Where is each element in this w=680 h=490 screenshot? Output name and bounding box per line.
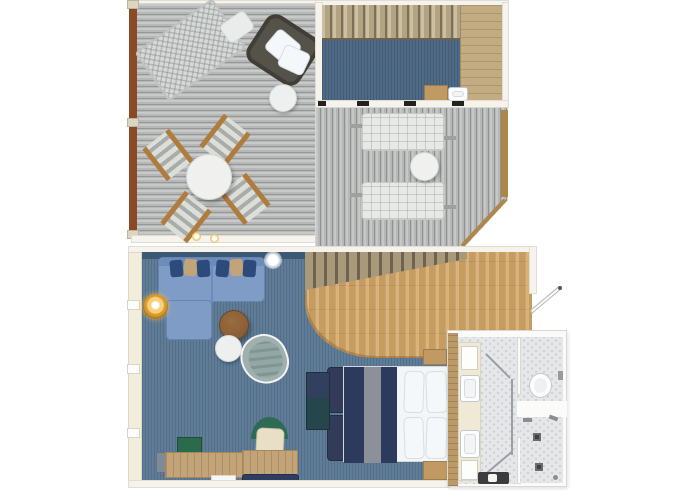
amenity-shelf [461,460,478,480]
upper-deck-bottom-wall [131,235,316,243]
bed-pillow [403,417,424,460]
sofa-pillow-tan [229,259,243,277]
sofa-pillow-tan [183,259,197,277]
entry-wall [529,246,537,294]
vanity-counter [458,342,481,481]
sofa-pillow-navy [196,260,210,278]
ceiling-light [264,251,282,269]
sofa-pillow-navy [215,259,229,277]
loft-right-wall [502,2,509,106]
window-mullion [127,428,140,438]
railing-post [127,0,139,9]
lower-bottom-wall [128,480,450,488]
sun-lounger [361,182,445,220]
shower-head [523,418,532,422]
dark-bench [478,472,509,484]
toilet-paper-holder [558,371,563,380]
window-segment [404,101,416,106]
bath-inner-wall [517,337,521,395]
sofa-pillow-navy [169,259,183,277]
sun-lounger [361,113,445,151]
nightstand [423,461,448,480]
bar-cabinet [424,85,448,101]
toilet [529,373,552,398]
amenity-shelf [461,346,478,370]
shower-drain [535,463,543,471]
shower-room-floor [520,417,563,483]
bed-pillow [425,371,447,414]
deck-light [210,234,219,243]
shower-drain [533,433,541,441]
deck-table [410,152,439,181]
storage-cabinet [306,372,330,430]
toilet-seat [534,378,547,393]
bathroom [447,330,567,487]
bath-wall-notch [517,401,567,417]
nightstand [423,349,447,365]
staircase-upper [322,5,461,40]
sofa-chaise [166,300,212,340]
window-segment [318,101,326,106]
window-segment [357,101,369,106]
vanity-sink [460,430,480,458]
window-segment [452,101,464,106]
wood-partition-wall [448,333,458,486]
side-table [215,335,242,362]
deck-light [192,232,201,241]
floor-plan [0,0,680,490]
bed-pillow [403,371,424,414]
egg-chair-cushion [245,337,288,381]
door-handle [558,286,562,290]
window-mullion [127,300,140,310]
towel [488,474,497,482]
floor-lamp [143,294,168,319]
bed-pillow [425,417,447,460]
sofa-pillow-navy [242,260,256,278]
shower-control [553,475,558,480]
glass-partition [511,379,513,455]
dining-table [186,154,232,200]
deck-railing-right [501,110,508,197]
bar-sink [448,87,468,101]
vanity-sink [460,375,480,402]
blanket-stripe [364,367,381,463]
window-mullion [127,364,140,374]
railing-post [127,118,139,127]
sofa-split [211,264,213,303]
double-bed [343,366,448,462]
side-table-upper [269,84,297,112]
